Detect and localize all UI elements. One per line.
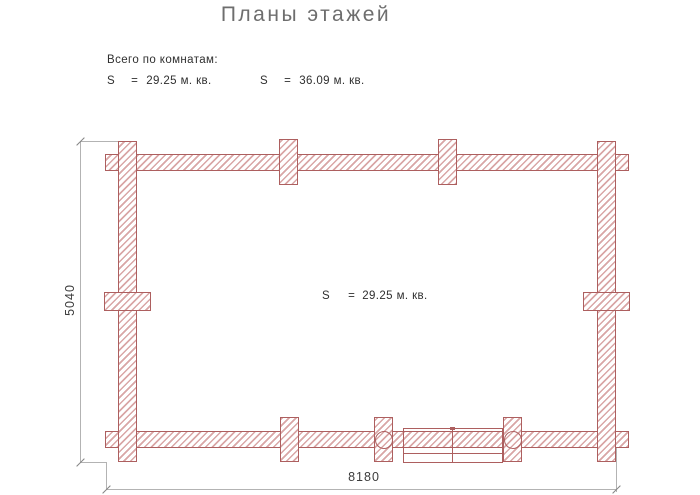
entrance-steps-tread-line: [403, 453, 503, 454]
area-value: 29.25 м. кв.: [362, 290, 427, 302]
dimension-line-vertical: [80, 141, 81, 462]
dimension-extension-right: [616, 448, 617, 492]
log-column-circle-left: [375, 431, 393, 449]
pilaster-left-middle: [104, 292, 151, 311]
room-area-entry-1: S=29.25 м. кв.: [107, 75, 212, 87]
area-symbol: S: [260, 75, 268, 87]
page-title: Планы этажей: [171, 3, 441, 27]
floor-plan-drawing: Планы этажей Всего по комнатам: S=29.25 …: [0, 0, 700, 495]
area-value: 29.25 м. кв.: [146, 75, 211, 87]
log-column-circle-right: [504, 431, 522, 449]
area-symbol: S: [107, 75, 115, 87]
room-area-label: S=29.25 м. кв.: [322, 290, 428, 302]
dimension-extension-top: [80, 141, 118, 142]
area-value: 36.09 м. кв.: [299, 75, 364, 87]
entrance-steps-mark: [450, 427, 455, 430]
equals-sign: =: [348, 290, 355, 302]
dimension-extension-bottom: [80, 462, 107, 463]
equals-sign: =: [284, 75, 291, 87]
dim-label-width: 8180: [348, 470, 380, 484]
room-area-entry-2: S=36.09 м. кв.: [260, 75, 365, 87]
equals-sign: =: [131, 75, 138, 87]
pilaster-top-left: [279, 139, 298, 185]
area-symbol: S: [322, 290, 330, 302]
entrance-steps-divider: [452, 428, 453, 463]
summary-heading: Всего по комнатам:: [107, 54, 218, 66]
dim-label-height: 5040: [63, 284, 77, 316]
dimension-extension-left: [106, 462, 107, 489]
pilaster-bottom-left: [280, 417, 299, 462]
wall-bottom: [105, 431, 629, 448]
dimension-line-horizontal: [106, 489, 616, 490]
pilaster-top-right: [438, 139, 457, 185]
pilaster-right-middle: [583, 292, 630, 311]
entrance-steps: [403, 428, 503, 463]
wall-top: [105, 154, 629, 171]
